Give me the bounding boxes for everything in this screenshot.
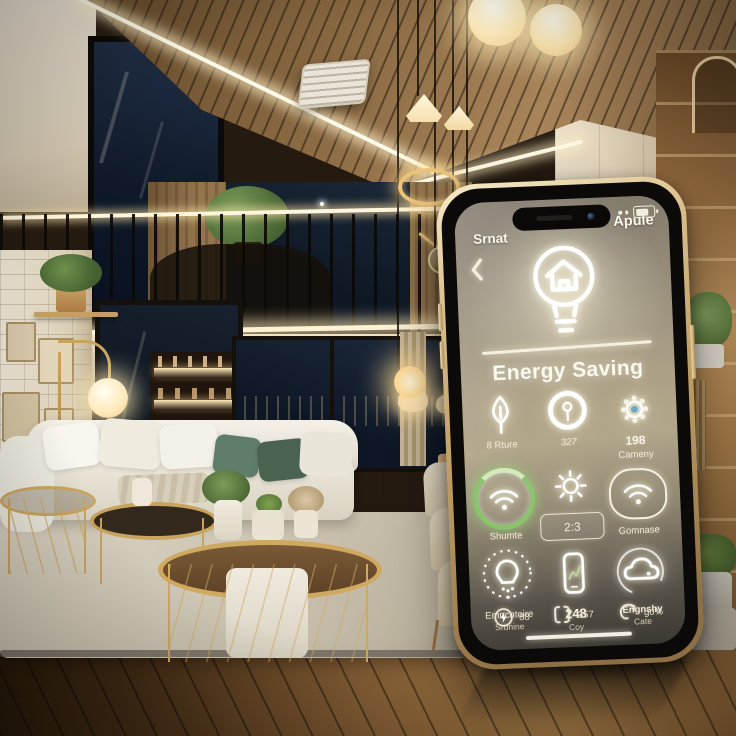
ceiling-vent <box>297 59 370 110</box>
tile-brightness[interactable]: 2:3 <box>536 465 606 542</box>
picture-frame <box>6 322 36 362</box>
sensor-ring-icon <box>542 388 594 436</box>
stat-value: 88 <box>519 612 530 623</box>
sun-icon <box>552 465 590 506</box>
leaf-icon <box>484 391 518 438</box>
speaker-slit <box>536 215 572 222</box>
pendant-cord <box>434 0 436 248</box>
star-dot <box>320 202 324 206</box>
coffee-table-2-cage <box>168 564 368 662</box>
bracket-square-icon <box>550 603 573 629</box>
shelf-plant <box>40 254 102 292</box>
bulb-dotted-icon <box>478 545 537 609</box>
wall-shelf <box>34 312 118 317</box>
tile-wifi-main[interactable]: Shumte <box>470 467 540 544</box>
device-grid: 8 Rture 327 198 Cameny <box>467 385 677 636</box>
tile-value: 198 <box>625 433 646 448</box>
phone-screen: Srnat Apule <box>454 195 687 652</box>
pot-small <box>252 510 284 540</box>
wifi-squircle-icon <box>608 467 668 520</box>
table-vase <box>132 478 152 506</box>
phone-bezel: Srnat Apule <box>440 180 700 666</box>
brightness-value-box[interactable]: 2:3 <box>540 512 605 542</box>
floor-lamp-globe <box>88 378 128 418</box>
camera-dot <box>587 213 594 220</box>
tile-label: Gomnase <box>618 524 660 537</box>
kitchen-arch <box>692 56 736 133</box>
pendant-cord <box>417 0 419 96</box>
pot-small <box>294 510 318 538</box>
pillow <box>159 422 220 470</box>
kitchen-flower-pot <box>692 344 724 368</box>
tile-sensor[interactable]: 327 <box>533 388 603 465</box>
pendant-orb-bright <box>394 366 426 398</box>
cloud-icon <box>612 539 671 603</box>
bulb-home-icon <box>515 235 613 348</box>
pillow <box>98 417 164 470</box>
back-button[interactable] <box>467 254 487 288</box>
phone-chart-icon <box>557 542 593 605</box>
stat-device-count[interactable]: 357 <box>550 602 594 629</box>
stat-value: go% <box>644 606 663 618</box>
tile-label: 327 <box>561 437 577 449</box>
volume-button <box>437 303 442 331</box>
chevron-left-icon <box>470 270 486 286</box>
tile-camera[interactable]: 198 Cameny <box>600 385 670 462</box>
living-room-scene: Srnat Apule <box>0 0 736 736</box>
volume-button <box>439 341 444 369</box>
bolt-circle-icon <box>493 606 515 631</box>
tile-nature[interactable]: 8 Rture <box>467 391 537 468</box>
swirl-arrow-icon <box>614 600 639 626</box>
smartphone: Srnat Apule <box>435 175 705 671</box>
pillow <box>299 431 353 478</box>
stat-value: 357 <box>578 609 594 621</box>
wall-top-left <box>0 0 96 212</box>
stat-power[interactable]: 88 <box>493 605 531 631</box>
tile-label: 8 Rture <box>486 439 518 451</box>
vase-tall <box>214 500 242 540</box>
side-table-cage <box>8 498 86 574</box>
page-title: Energy Saving <box>460 355 675 388</box>
stat-refresh[interactable]: go% <box>614 599 663 626</box>
tile-label: Shumte <box>489 530 522 542</box>
gear-icon <box>617 386 651 433</box>
tile-network[interactable]: Gomnase <box>603 462 673 539</box>
app-label-left: Srnat <box>473 230 508 246</box>
wifi-green-ring-icon <box>472 467 537 532</box>
notch <box>512 204 611 231</box>
tile-label: Cameny <box>618 449 654 461</box>
pendant-globe-large <box>530 4 582 56</box>
pillow <box>41 420 103 471</box>
app-label-right: Apule <box>613 212 654 230</box>
